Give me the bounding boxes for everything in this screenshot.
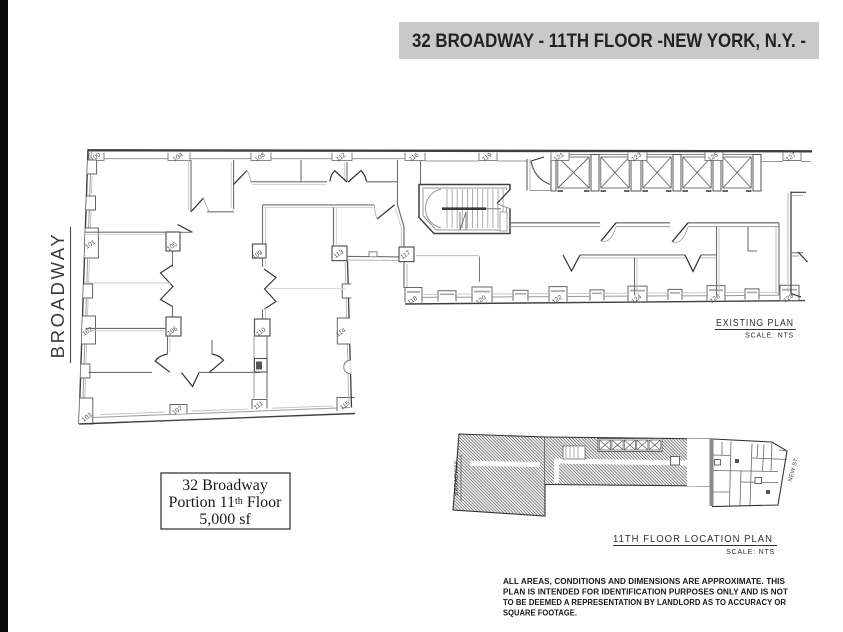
- svg-text:EXISTING PLAN: EXISTING PLAN: [716, 318, 794, 329]
- svg-text:11TH FLOOR LOCATION PLAN: 11TH FLOOR LOCATION PLAN: [613, 534, 773, 545]
- svg-text:BROADWAY: BROADWAY: [454, 460, 460, 495]
- svg-text:TO BE DEEMED A REPRESENTATION: TO BE DEEMED A REPRESENTATION BY LANDLOR…: [503, 597, 787, 607]
- svg-text:SCALE: NTS: SCALE: NTS: [726, 549, 775, 556]
- svg-text:Portion 11th Floor: Portion 11th Floor: [169, 494, 283, 511]
- svg-text:32 BROADWAY - 11TH FLOOR -NEW: 32 BROADWAY - 11TH FLOOR -NEW YORK, N.Y.…: [412, 30, 806, 52]
- svg-text:32 Broadway: 32 Broadway: [182, 477, 268, 494]
- svg-text:BROADWAY: BROADWAY: [47, 232, 68, 359]
- svg-text:PLAN IS INTENDED FOR IDENTIFIC: PLAN IS INTENDED FOR IDENTIFICATION PURP…: [503, 587, 789, 597]
- svg-text:SCALE: NTS: SCALE: NTS: [745, 333, 794, 340]
- svg-text:SQUARE FOOTAGE.: SQUARE FOOTAGE.: [503, 608, 577, 618]
- svg-text:ALL AREAS, CONDITIONS AND DIME: ALL AREAS, CONDITIONS AND DIMENSIONS ARE…: [503, 576, 785, 586]
- svg-text:5,000 sf: 5,000 sf: [199, 511, 251, 528]
